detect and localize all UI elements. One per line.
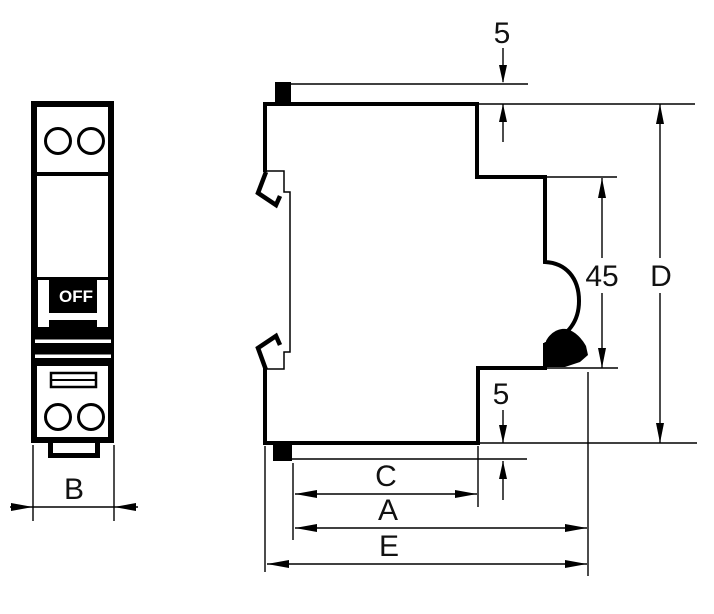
- arrowhead-a-right: [565, 524, 587, 532]
- arrowhead-45-down: [598, 348, 606, 368]
- indicator-stripe-1: [35, 340, 111, 344]
- dimension-label-bottom5: 5: [493, 378, 510, 411]
- front-din-clip: [51, 443, 98, 456]
- terminal-screw-bottom-left: [46, 405, 71, 430]
- dimension-top5: 5: [494, 17, 511, 142]
- switch-slot-left: [38, 280, 49, 327]
- dimension-label-45: 45: [585, 260, 618, 293]
- arrowhead-d-up: [656, 104, 664, 124]
- toggle-off-label: OFF: [59, 287, 93, 306]
- arrowhead-c-right: [455, 490, 477, 498]
- arrowhead-top5-up: [499, 104, 507, 122]
- side-view: 5 45 D 5: [258, 17, 697, 576]
- arrowhead-a-left: [295, 524, 317, 532]
- arrowhead-bottom5-down: [499, 425, 507, 443]
- dimension-bottom5: 5: [493, 378, 510, 500]
- arrowhead-bottom5-up: [499, 461, 507, 479]
- front-body-outline: [34, 104, 111, 440]
- arrowhead-top5-down: [499, 65, 507, 83]
- dimension-e: E: [267, 530, 587, 568]
- mounting-tab-top: [275, 82, 291, 102]
- arrowhead-45-up: [598, 178, 606, 198]
- front-view: OFF B: [10, 104, 138, 521]
- arrowhead-b-left: [11, 503, 33, 511]
- switch-slot-right: [97, 280, 108, 327]
- toggle-lever-side: [546, 329, 588, 367]
- dimension-label-top5: 5: [494, 17, 511, 50]
- arrowhead-e-left: [267, 560, 289, 568]
- arrowhead-b-right: [114, 503, 136, 511]
- din-claw-bottom: [258, 336, 280, 370]
- terminal-screw-top-right: [79, 129, 104, 154]
- dimension-a: A: [295, 494, 587, 532]
- din-claw-top: [258, 172, 280, 205]
- dimension-45: 45: [585, 178, 618, 368]
- arrowhead-e-right: [565, 560, 587, 568]
- mounting-tab-bottom: [273, 444, 292, 461]
- arrowhead-d-down: [656, 423, 664, 443]
- dimension-label-d: D: [650, 260, 672, 293]
- dimension-label-e: E: [379, 530, 399, 563]
- arrowhead-c-left: [295, 490, 317, 498]
- dimension-label-c: C: [375, 460, 397, 493]
- switch-handle-bar: [49, 313, 97, 320]
- indicator-stripe-2: [35, 355, 111, 359]
- dimension-drawing: OFF B: [0, 0, 714, 614]
- dimension-label-b: B: [64, 473, 84, 506]
- dimension-label-a: A: [378, 494, 398, 527]
- dimension-d: D: [650, 104, 672, 443]
- terminal-screw-bottom-right: [79, 405, 104, 430]
- terminal-screw-top-left: [46, 129, 71, 154]
- drawing-canvas: OFF B: [0, 0, 714, 614]
- dimension-c: C: [295, 460, 477, 498]
- side-body-silhouette: [265, 104, 579, 443]
- switch-panel: OFF: [35, 277, 111, 366]
